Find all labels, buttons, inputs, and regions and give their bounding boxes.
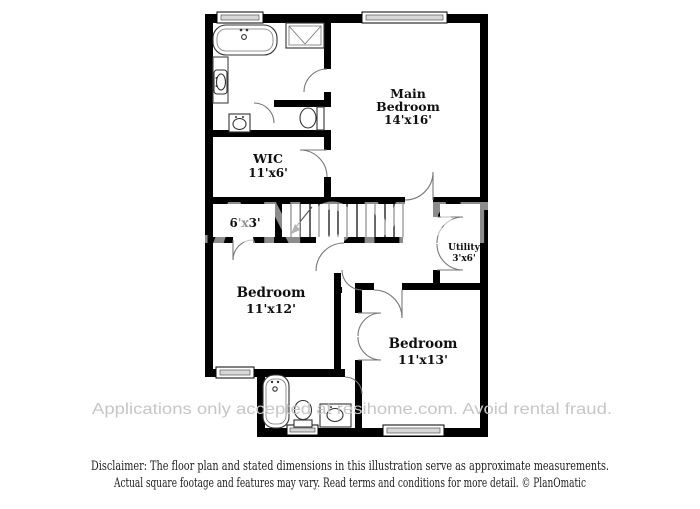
bathtub-icon <box>213 25 277 55</box>
window <box>383 425 444 436</box>
wall-bedroom-right-north-b <box>402 283 488 290</box>
wall-strip-north <box>334 287 342 293</box>
door-arc <box>304 69 327 92</box>
window <box>362 12 447 23</box>
room-label-wic: WIC <box>252 151 283 166</box>
door-arc <box>374 290 402 318</box>
window <box>217 12 263 23</box>
wall-bedroom-right-west-lower <box>355 360 362 429</box>
disclaimer: Disclaimer: The floor plan and stated di… <box>91 459 609 491</box>
room-label-main-bedroom: Bedroom <box>376 99 440 114</box>
door-arc <box>300 150 327 177</box>
vanity-sink-icon <box>213 57 228 103</box>
wall-wic-main-upper <box>324 137 331 150</box>
wall-utility-stub-bottom <box>433 270 440 283</box>
room-dims-bedroom-right: 11'x13' <box>398 352 448 367</box>
wall-bedroom-right-west-upper <box>355 290 362 313</box>
double-door-arc <box>358 313 381 336</box>
watermark-applications: Applications only accepted at resihome.c… <box>92 401 612 418</box>
disclaimer-line1: Disclaimer: The floor plan and stated di… <box>91 459 609 474</box>
window <box>216 367 254 378</box>
toilet-icon <box>300 107 324 130</box>
watermark-planomatic: PLANOMATIC <box>130 192 570 257</box>
vanity-sink-icon <box>229 114 250 132</box>
wall-bedroom-right-north-a <box>355 283 374 290</box>
wall-bath-wic <box>205 130 331 137</box>
room-dims-main-bedroom: 14'x16' <box>384 113 432 127</box>
floor-plan-page: Main Bedroom 14'x16' WIC 11'x6' 6'x3' Ut… <box>0 0 700 509</box>
disclaimer-line2: Actual square footage and features may v… <box>113 476 586 491</box>
room-label-bedroom-left: Bedroom <box>237 285 306 301</box>
wall-toilet-room <box>274 100 331 107</box>
door-arc <box>254 103 274 123</box>
room-label-bedroom-right: Bedroom <box>389 336 458 352</box>
wall-bath-main <box>324 14 331 69</box>
floor-plan: Main Bedroom 14'x16' WIC 11'x6' 6'x3' Ut… <box>0 0 700 509</box>
room-dims-bedroom-left: 11'x12' <box>246 301 296 316</box>
room-dims-wic: 11'x6' <box>248 166 288 180</box>
shower-icon <box>286 23 324 48</box>
double-door-arc <box>358 337 381 360</box>
